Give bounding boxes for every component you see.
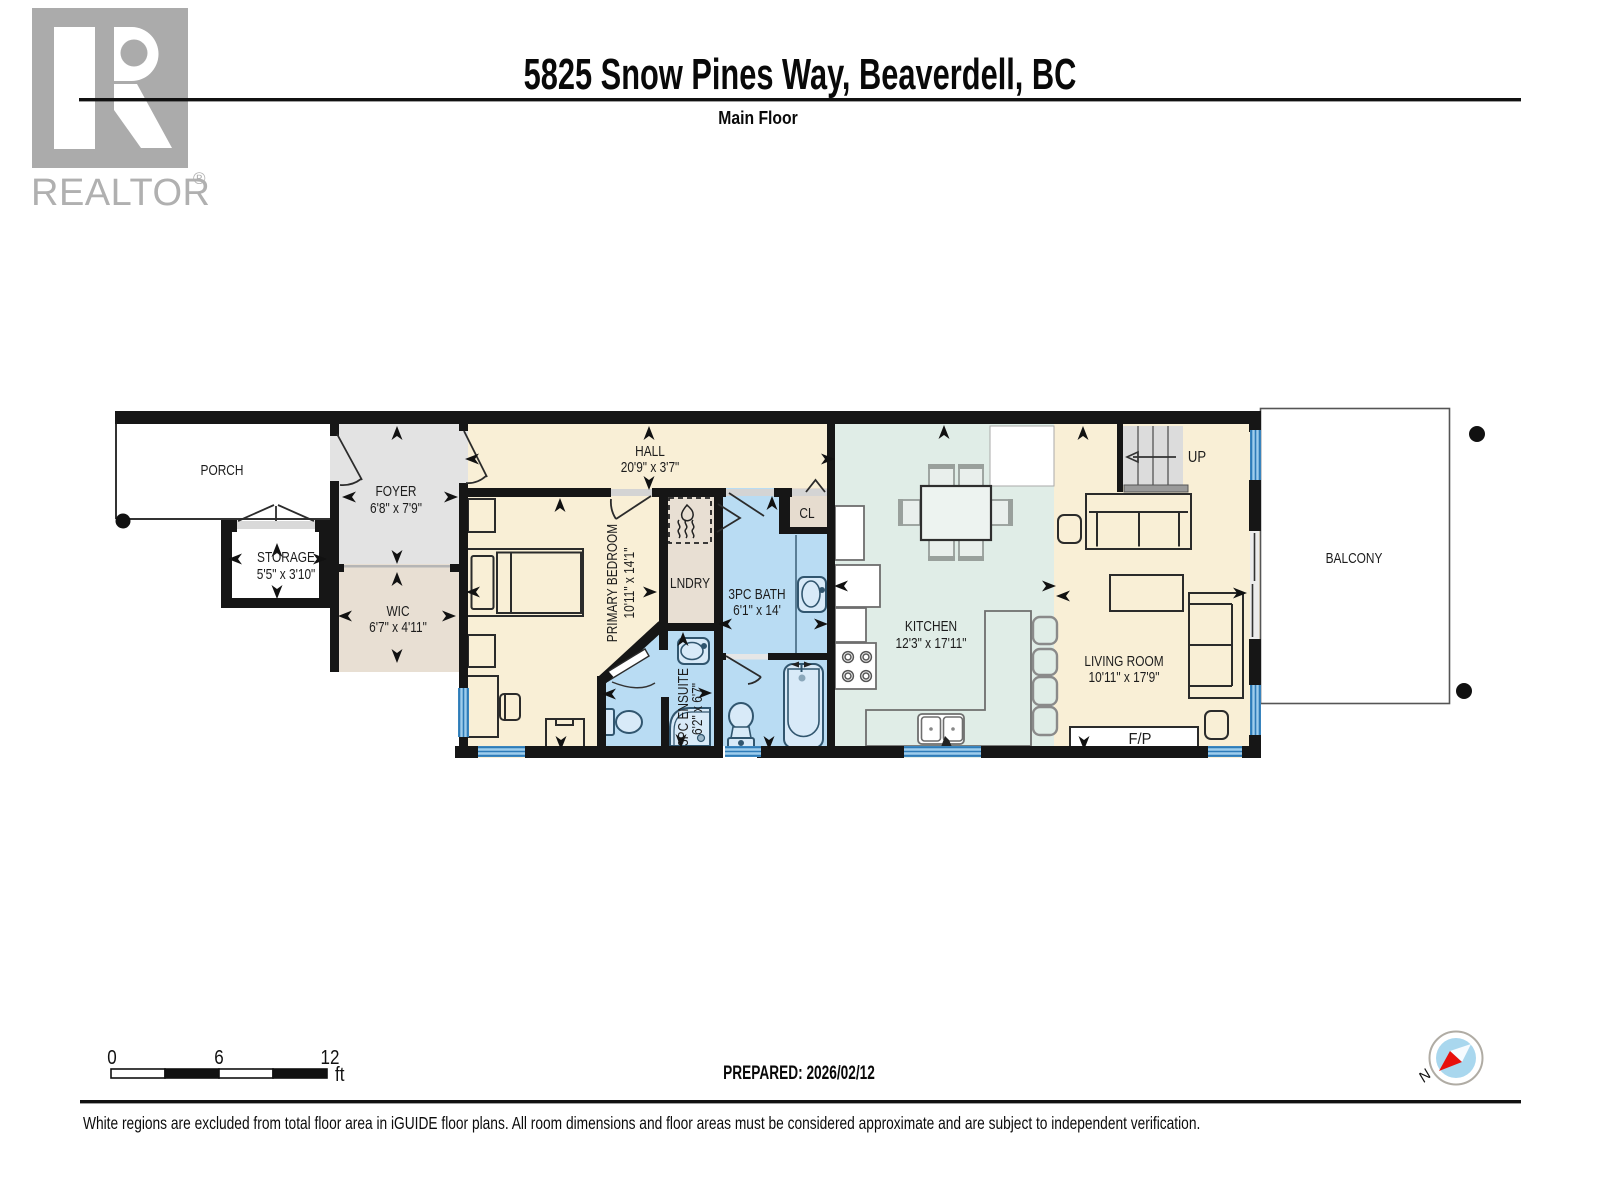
svg-text:3PC BATH: 3PC BATH — [728, 586, 785, 602]
svg-text:REALTOR: REALTOR — [31, 172, 210, 214]
svg-text:5'5" x 3'10": 5'5" x 3'10" — [257, 566, 316, 582]
svg-text:12'3" x 17'11": 12'3" x 17'11" — [896, 635, 967, 651]
svg-text:PORCH: PORCH — [201, 462, 244, 478]
svg-text:WIC: WIC — [386, 603, 409, 619]
svg-text:6'1" x 14': 6'1" x 14' — [733, 602, 781, 618]
svg-text:6'7" x 4'11": 6'7" x 4'11" — [369, 619, 427, 635]
svg-text:UP: UP — [1188, 449, 1206, 466]
svg-text:KITCHEN: KITCHEN — [905, 618, 957, 634]
svg-text:STORAGE: STORAGE — [257, 549, 315, 565]
svg-text:LNDRY: LNDRY — [670, 575, 710, 591]
svg-text:5825 Snow Pines Way, Beaverdel: 5825 Snow Pines Way, Beaverdell, BC — [524, 51, 1077, 100]
svg-text:6'8" x 7'9": 6'8" x 7'9" — [370, 500, 422, 516]
svg-text:ft: ft — [335, 1063, 345, 1086]
svg-text:0: 0 — [107, 1046, 116, 1069]
svg-text:20'9" x 3'7": 20'9" x 3'7" — [621, 459, 680, 475]
svg-text:6'2" x 6'7": 6'2" x 6'7" — [689, 683, 705, 735]
svg-text:CL: CL — [799, 505, 814, 521]
svg-text:10'11" x 17'9": 10'11" x 17'9" — [1089, 669, 1160, 685]
svg-text:PREPARED: 2026/02/12: PREPARED: 2026/02/12 — [723, 1062, 875, 1084]
svg-text:®: ® — [193, 169, 206, 188]
svg-text:HALL: HALL — [635, 443, 665, 459]
svg-text:BALCONY: BALCONY — [1326, 550, 1383, 566]
svg-text:Main Floor: Main Floor — [718, 107, 798, 129]
svg-text:PRIMARY BEDROOM: PRIMARY BEDROOM — [604, 524, 620, 642]
svg-text:LIVING ROOM: LIVING ROOM — [1084, 653, 1163, 669]
svg-text:6: 6 — [214, 1046, 223, 1069]
svg-text:White regions are excluded fro: White regions are excluded from total fl… — [83, 1115, 1200, 1134]
svg-text:F/P: F/P — [1129, 731, 1152, 748]
svg-text:10'11" x 14'1": 10'11" x 14'1" — [621, 547, 637, 618]
svg-text:FOYER: FOYER — [376, 483, 417, 499]
